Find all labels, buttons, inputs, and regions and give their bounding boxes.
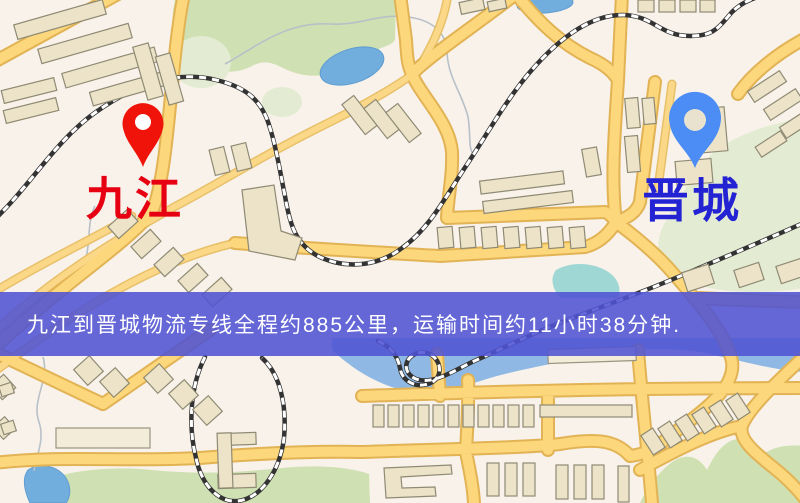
route-info-banner: 九江到晋城物流专线全程约885公里，运输时间约11小时38分钟. — [0, 292, 800, 356]
route-info-text: 九江到晋城物流专线全程约885公里，运输时间约11小时38分钟. — [0, 309, 681, 339]
destination-city-label: 晋城 — [642, 178, 742, 225]
origin-city-label: 九江 — [86, 176, 184, 222]
map-image: 九江 晋城 九江到晋城物流专线全程约885公里，运输时间约11小时38分钟. — [0, 0, 800, 503]
map-canvas — [0, 0, 800, 503]
